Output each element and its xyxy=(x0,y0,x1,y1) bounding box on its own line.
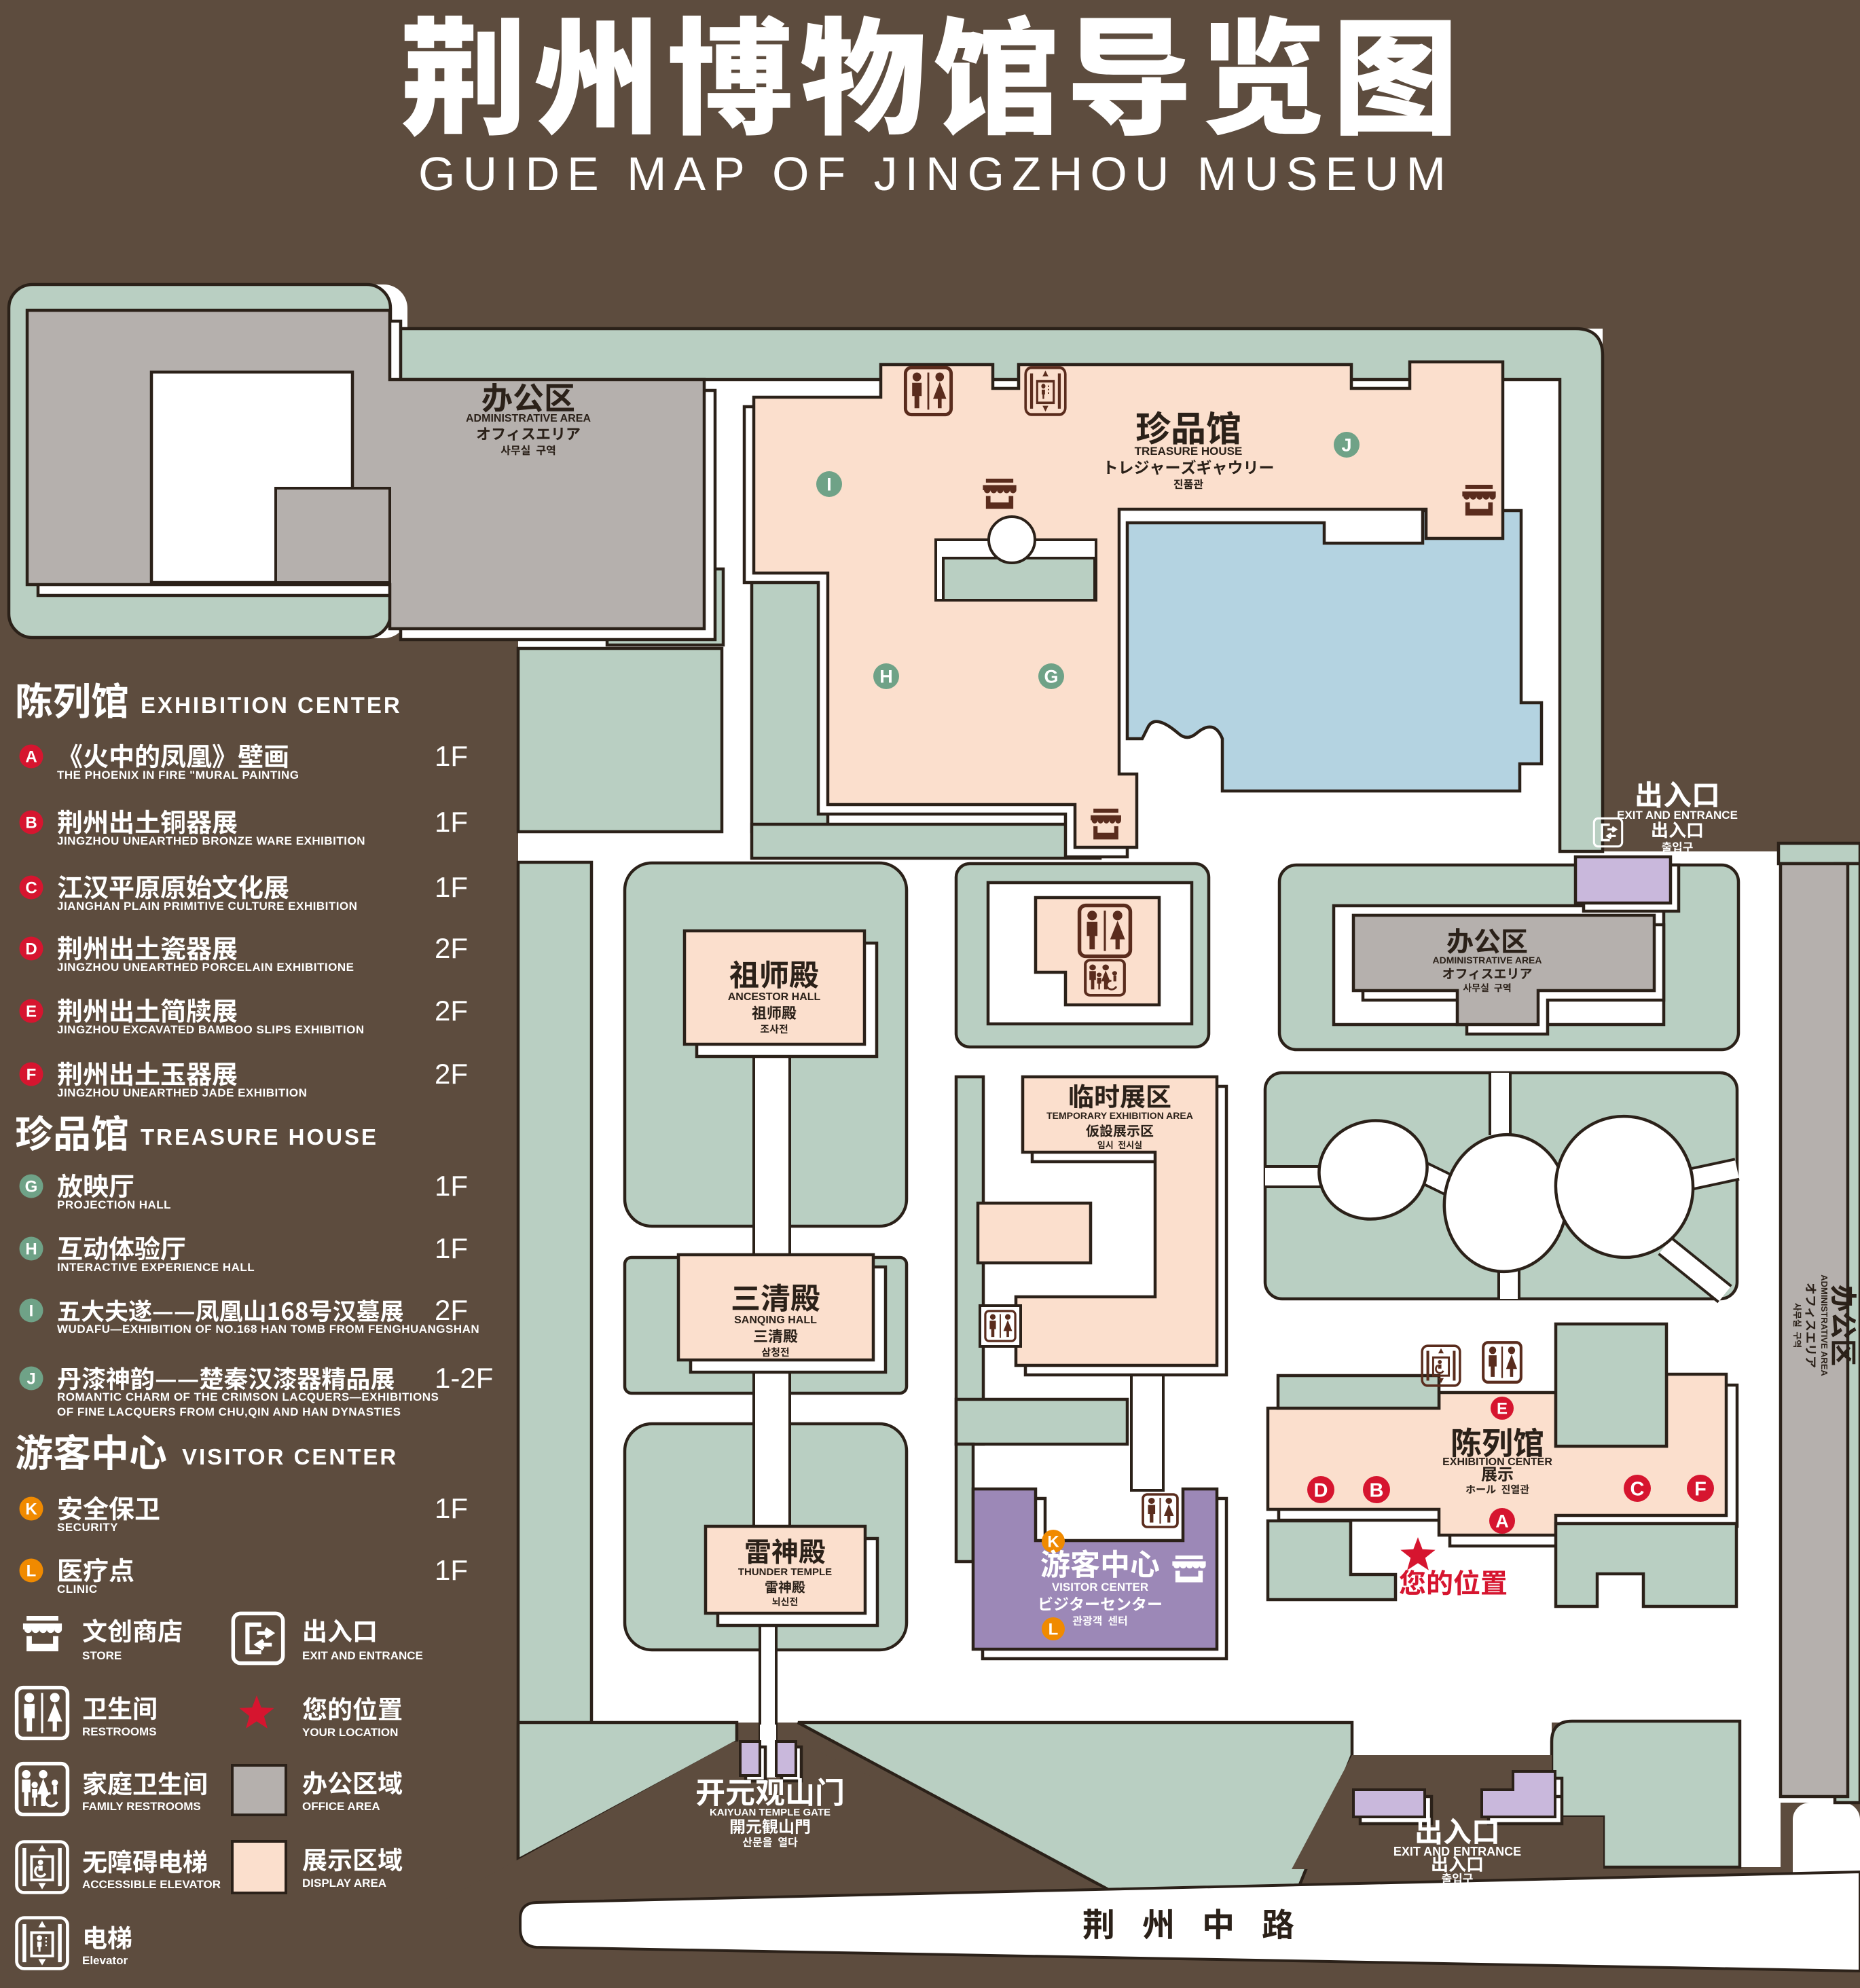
svg-text:EXIT AND ENTRANCE: EXIT AND ENTRANCE xyxy=(302,1649,423,1662)
svg-text:VISITOR CENTER: VISITOR CENTER xyxy=(182,1444,398,1469)
svg-text:G: G xyxy=(25,1178,38,1196)
svg-text:JINGZHOU UNEARTHED PORCELAIN E: JINGZHOU UNEARTHED PORCELAIN EXHIBITIONE xyxy=(57,961,354,974)
svg-text:E: E xyxy=(1497,1400,1508,1418)
svg-text:H: H xyxy=(25,1240,37,1259)
svg-text:1F: 1F xyxy=(435,740,468,772)
svg-text:2F: 2F xyxy=(435,1294,468,1326)
svg-text:C: C xyxy=(1630,1478,1645,1500)
svg-text:B: B xyxy=(1370,1479,1384,1501)
svg-text:FAMILY RESTROOMS: FAMILY RESTROOMS xyxy=(82,1800,201,1813)
svg-text:L: L xyxy=(26,1562,37,1581)
svg-text:EXHIBITION CENTER: EXHIBITION CENTER xyxy=(1442,1456,1552,1468)
svg-text:I: I xyxy=(29,1302,34,1321)
svg-text:2F: 2F xyxy=(435,995,468,1027)
svg-text:1F: 1F xyxy=(435,1232,468,1264)
svg-text:EXHIBITION CENTER: EXHIBITION CENTER xyxy=(141,693,402,718)
svg-text:DISPLAY AREA: DISPLAY AREA xyxy=(302,1877,386,1890)
svg-text:JINGZHOU UNEARTHED BRONZE WARE: JINGZHOU UNEARTHED BRONZE WARE EXHIBITIO… xyxy=(57,834,365,847)
svg-text:THE PHOENIX IN FIRE "MURAL PAI: THE PHOENIX IN FIRE "MURAL PAINTING xyxy=(57,769,299,781)
svg-text:I: I xyxy=(826,475,832,495)
svg-text:OF FINE LACQUERS FROM CHU,QIN: OF FINE LACQUERS FROM CHU,QIN AND HAN DY… xyxy=(57,1405,401,1418)
svg-text:EXIT AND ENTRANCE: EXIT AND ENTRANCE xyxy=(1617,809,1738,822)
svg-text:JINGZHOU UNEARTHED JADE EXHIBI: JINGZHOU UNEARTHED JADE EXHIBITION xyxy=(57,1086,307,1099)
svg-text:VISITOR CENTER: VISITOR CENTER xyxy=(1052,1581,1148,1594)
svg-text:L: L xyxy=(1048,1621,1059,1639)
svg-text:WUDAFU—EXHIBITION OF NO.168 HA: WUDAFU—EXHIBITION OF NO.168 HAN TOMB FRO… xyxy=(57,1323,479,1336)
svg-text:F: F xyxy=(26,1066,37,1084)
svg-text:YOUR LOCATION: YOUR LOCATION xyxy=(302,1726,398,1739)
svg-text:KAIYUAN TEMPLE GATE: KAIYUAN TEMPLE GATE xyxy=(710,1807,831,1818)
svg-text:SANQING HALL: SANQING HALL xyxy=(734,1314,817,1326)
svg-text:EXIT AND ENTRANCE: EXIT AND ENTRANCE xyxy=(1393,1845,1521,1858)
svg-text:OFFICE AREA: OFFICE AREA xyxy=(302,1800,380,1813)
svg-text:THUNDER TEMPLE: THUNDER TEMPLE xyxy=(738,1566,832,1578)
svg-text:2F: 2F xyxy=(435,932,468,964)
svg-text:ADMINISTRATIVE AREA: ADMINISTRATIVE AREA xyxy=(1433,955,1542,965)
svg-text:1F: 1F xyxy=(435,806,468,838)
svg-text:A: A xyxy=(25,748,37,767)
svg-text:TEMPORARY EXHIBITION AREA: TEMPORARY EXHIBITION AREA xyxy=(1046,1110,1193,1121)
svg-text:F: F xyxy=(1694,1478,1707,1500)
svg-text:1F: 1F xyxy=(435,1170,468,1202)
svg-text:TREASURE HOUSE: TREASURE HOUSE xyxy=(141,1124,378,1149)
svg-text:ADMINISTRATIVE AREA: ADMINISTRATIVE AREA xyxy=(466,413,591,424)
svg-text:2F: 2F xyxy=(435,1058,468,1090)
svg-text:1F: 1F xyxy=(435,1554,468,1586)
svg-text:G: G xyxy=(1044,667,1058,687)
svg-text:1F: 1F xyxy=(435,1492,468,1524)
svg-text:B: B xyxy=(25,814,37,832)
svg-text:J: J xyxy=(26,1370,35,1388)
svg-text:ROMANTIC CHARM OF THE CRIMSON: ROMANTIC CHARM OF THE CRIMSON LACQUERS—E… xyxy=(57,1391,439,1403)
svg-text:RESTROOMS: RESTROOMS xyxy=(82,1725,157,1738)
svg-text:C: C xyxy=(25,879,37,898)
svg-text:TREASURE HOUSE: TREASURE HOUSE xyxy=(1135,445,1243,458)
svg-text:1-2F: 1-2F xyxy=(435,1362,493,1394)
svg-text:ACCESSIBLE ELEVATOR: ACCESSIBLE ELEVATOR xyxy=(82,1878,221,1891)
svg-text:A: A xyxy=(1495,1511,1509,1532)
svg-text:K: K xyxy=(25,1501,37,1519)
svg-text:SECURITY: SECURITY xyxy=(57,1521,118,1534)
svg-text:GUIDE MAP OF JINGZHOU MUSEUM: GUIDE MAP OF JINGZHOU MUSEUM xyxy=(418,147,1453,200)
svg-text:ANCESTOR HALL: ANCESTOR HALL xyxy=(728,991,821,1003)
svg-text:H: H xyxy=(879,667,893,687)
svg-text:D: D xyxy=(25,940,37,959)
svg-text:K: K xyxy=(1047,1533,1059,1551)
svg-text:CLINIC: CLINIC xyxy=(57,1583,98,1596)
svg-text:E: E xyxy=(26,1003,37,1021)
svg-text:1F: 1F xyxy=(435,871,468,903)
svg-text:ADMINISTRATIVE AREA: ADMINISTRATIVE AREA xyxy=(1819,1274,1829,1376)
svg-text:INTERACTIVE EXPERIENCE HALL: INTERACTIVE EXPERIENCE HALL xyxy=(57,1261,255,1274)
svg-text:JIANGHAN PLAIN PRIMITIVE CULTU: JIANGHAN PLAIN PRIMITIVE CULTURE EXHIBIT… xyxy=(57,900,357,913)
svg-text:STORE: STORE xyxy=(82,1649,122,1662)
svg-text:D: D xyxy=(1314,1479,1328,1501)
svg-text:Elevator: Elevator xyxy=(82,1954,128,1967)
svg-text:PROJECTION HALL: PROJECTION HALL xyxy=(57,1198,171,1211)
svg-text:J: J xyxy=(1341,435,1351,456)
svg-text:JINGZHOU EXCAVATED BAMBOO SLIP: JINGZHOU EXCAVATED BAMBOO SLIPS EXHIBITI… xyxy=(57,1023,365,1036)
